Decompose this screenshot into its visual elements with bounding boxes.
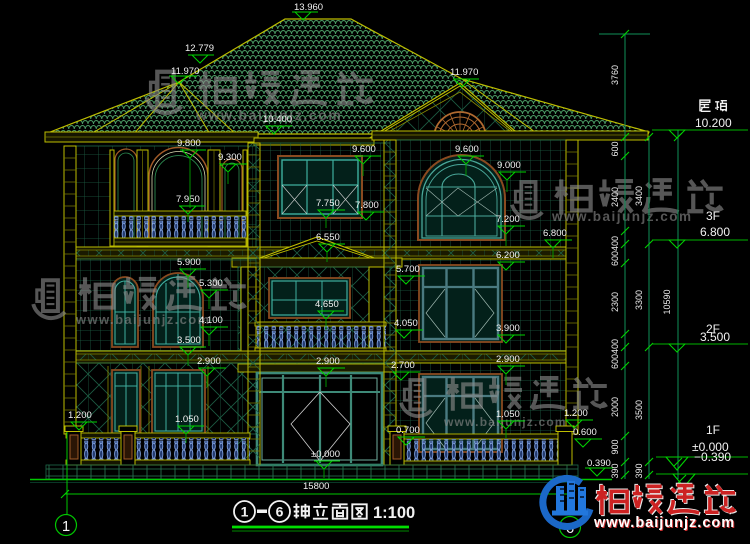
svg-text:www.baijunjz.com: www.baijunjz.com [75,312,211,327]
svg-text:9.300: 9.300 [218,152,242,163]
svg-text:www.baijunjz.com: www.baijunjz.com [593,515,735,531]
svg-text:5.700: 5.700 [396,264,420,275]
svg-text:3500: 3500 [634,400,644,420]
svg-text:1: 1 [62,518,70,535]
svg-text:3760: 3760 [610,65,620,85]
svg-text:3300: 3300 [634,290,644,310]
svg-text:7.800: 7.800 [355,200,379,211]
svg-text:900: 900 [610,439,620,454]
svg-text:2400: 2400 [610,187,620,207]
svg-text:0.700: 0.700 [396,425,420,436]
svg-text:6.200: 6.200 [496,250,520,261]
svg-text:1.050: 1.050 [175,414,199,425]
svg-text:1: 1 [241,504,249,520]
svg-text:600400: 600400 [610,339,620,369]
svg-text:6.800: 6.800 [543,228,567,239]
svg-text:4.650: 4.650 [315,299,339,310]
svg-text:10590: 10590 [662,289,672,314]
svg-text:12.779: 12.779 [185,43,214,54]
svg-text:390: 390 [634,463,644,478]
svg-text:3F: 3F [706,209,720,223]
svg-text:15800: 15800 [303,481,329,492]
svg-text:7.950: 7.950 [176,194,200,205]
svg-text:1:100: 1:100 [373,504,415,522]
svg-text:10.400: 10.400 [263,114,292,125]
svg-text:13.960: 13.960 [294,2,323,13]
svg-text:9.600: 9.600 [352,144,376,155]
svg-text:11.970: 11.970 [171,66,199,77]
svg-text:−0.390: −0.390 [694,450,731,464]
svg-text:9.000: 9.000 [497,160,521,171]
svg-text:7.200: 7.200 [496,214,520,225]
svg-text:2.900: 2.900 [316,356,340,367]
svg-text:3400: 3400 [634,186,644,206]
svg-text:1.200: 1.200 [564,408,588,419]
svg-text:10.200: 10.200 [695,116,732,130]
svg-text:±0.000: ±0.000 [311,449,340,460]
svg-text:2000: 2000 [610,397,620,417]
svg-text:7.750: 7.750 [316,198,340,209]
svg-text:600: 600 [610,141,620,156]
svg-text:2.900: 2.900 [197,356,221,367]
svg-text:1.050: 1.050 [496,409,520,420]
svg-text:3.500: 3.500 [177,335,201,346]
svg-text:5.900: 5.900 [177,257,201,268]
svg-text:1.200: 1.200 [68,410,92,421]
svg-text:4.100: 4.100 [199,315,223,326]
svg-text:5.300: 5.300 [199,278,223,289]
svg-text:2300: 2300 [610,292,620,312]
svg-text:3.500: 3.500 [700,330,730,344]
svg-text:11.970: 11.970 [450,67,478,78]
svg-text:4.050: 4.050 [394,318,418,329]
svg-text:390: 390 [610,463,620,478]
svg-text:3.900: 3.900 [496,323,520,334]
svg-text:6: 6 [276,504,284,520]
svg-text:2.700: 2.700 [391,360,415,371]
svg-text:2.900: 2.900 [496,354,520,365]
svg-text:1F: 1F [706,423,720,437]
svg-text:600400: 600400 [610,236,620,266]
svg-text:0.390: 0.390 [587,458,611,469]
svg-text:www.baijunjz.com: www.baijunjz.com [551,209,693,224]
svg-text:6.550: 6.550 [316,232,340,243]
svg-text:9.600: 9.600 [455,144,479,155]
svg-text:9.800: 9.800 [177,138,201,149]
svg-text:6.800: 6.800 [700,225,730,239]
svg-text:0.600: 0.600 [573,427,597,438]
